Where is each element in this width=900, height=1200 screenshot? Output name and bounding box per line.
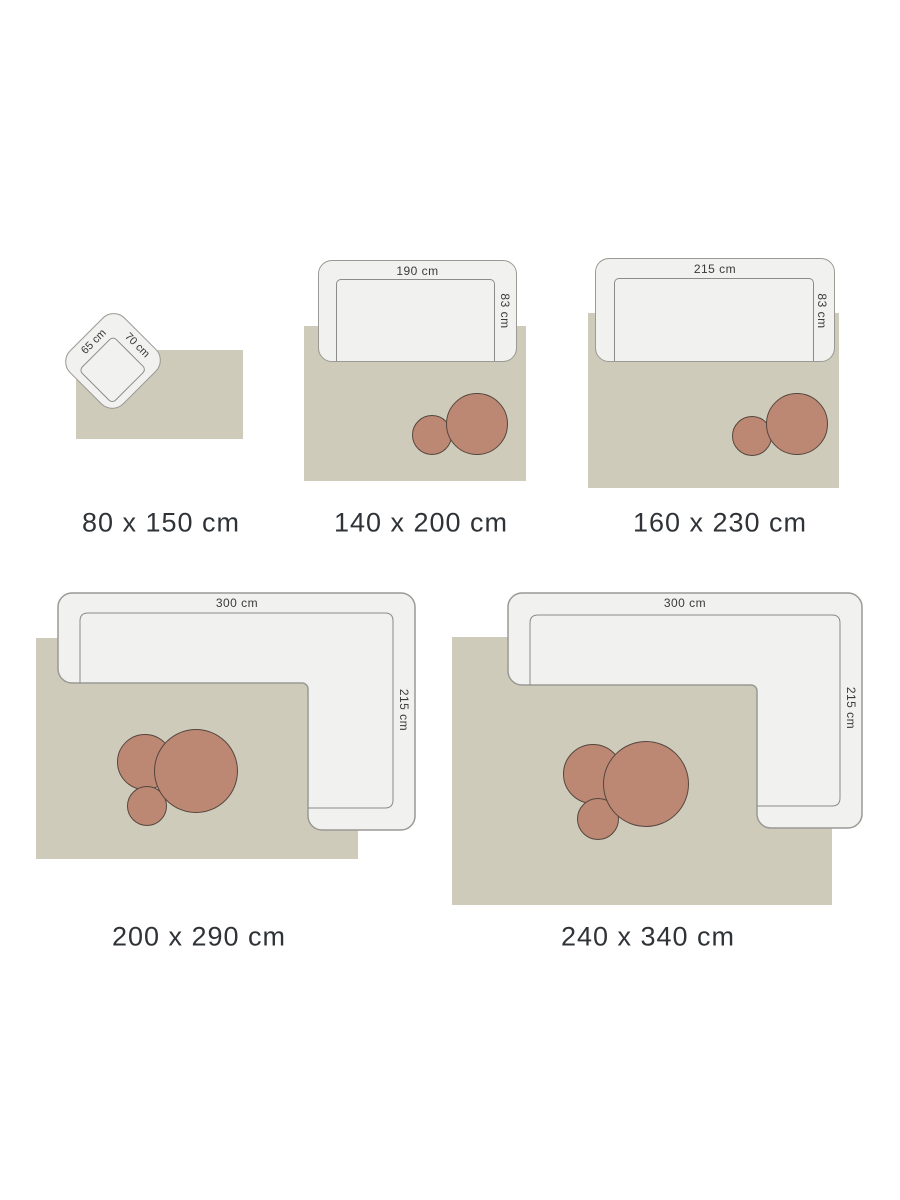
corner-sofa-width-label: 300 cm: [664, 596, 706, 610]
corner-sofa-depth-label: 215 cm: [844, 682, 858, 734]
corner-sofa-icon: [58, 593, 415, 830]
size-label-200x290: 200 x 290 cm: [112, 922, 286, 953]
pouf-large-icon: [154, 729, 238, 813]
corner-sofas-layer: [0, 0, 900, 1200]
corner-sofa-depth-label: 215 cm: [397, 684, 411, 736]
rug-size-guide: 65 cm 70 cm 80 x 150 cm 190 cm 83 cm 140…: [0, 0, 900, 1200]
pouf-large-icon: [603, 741, 689, 827]
size-label-240x340: 240 x 340 cm: [561, 922, 735, 953]
corner-sofa-width-label: 300 cm: [216, 596, 258, 610]
